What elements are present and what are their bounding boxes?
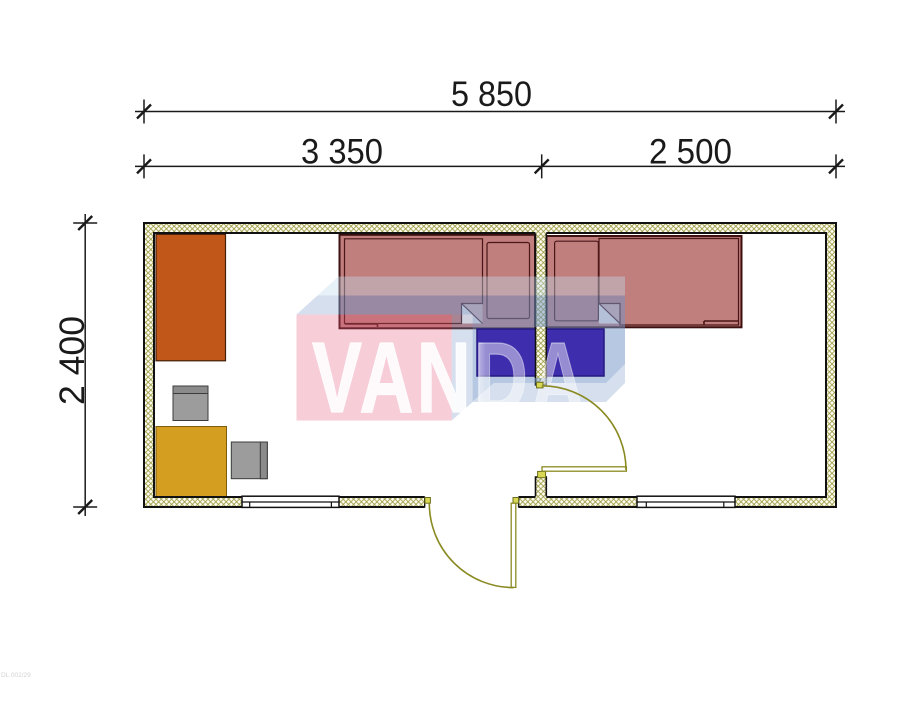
svg-text:DL 002/29: DL 002/29 bbox=[1, 672, 31, 679]
svg-text:3 350: 3 350 bbox=[301, 132, 383, 172]
svg-text:VANDA: VANDA bbox=[312, 321, 588, 433]
svg-text:2 400: 2 400 bbox=[52, 316, 92, 405]
svg-text:5 850: 5 850 bbox=[451, 74, 532, 114]
svg-text:2 500: 2 500 bbox=[649, 132, 732, 172]
